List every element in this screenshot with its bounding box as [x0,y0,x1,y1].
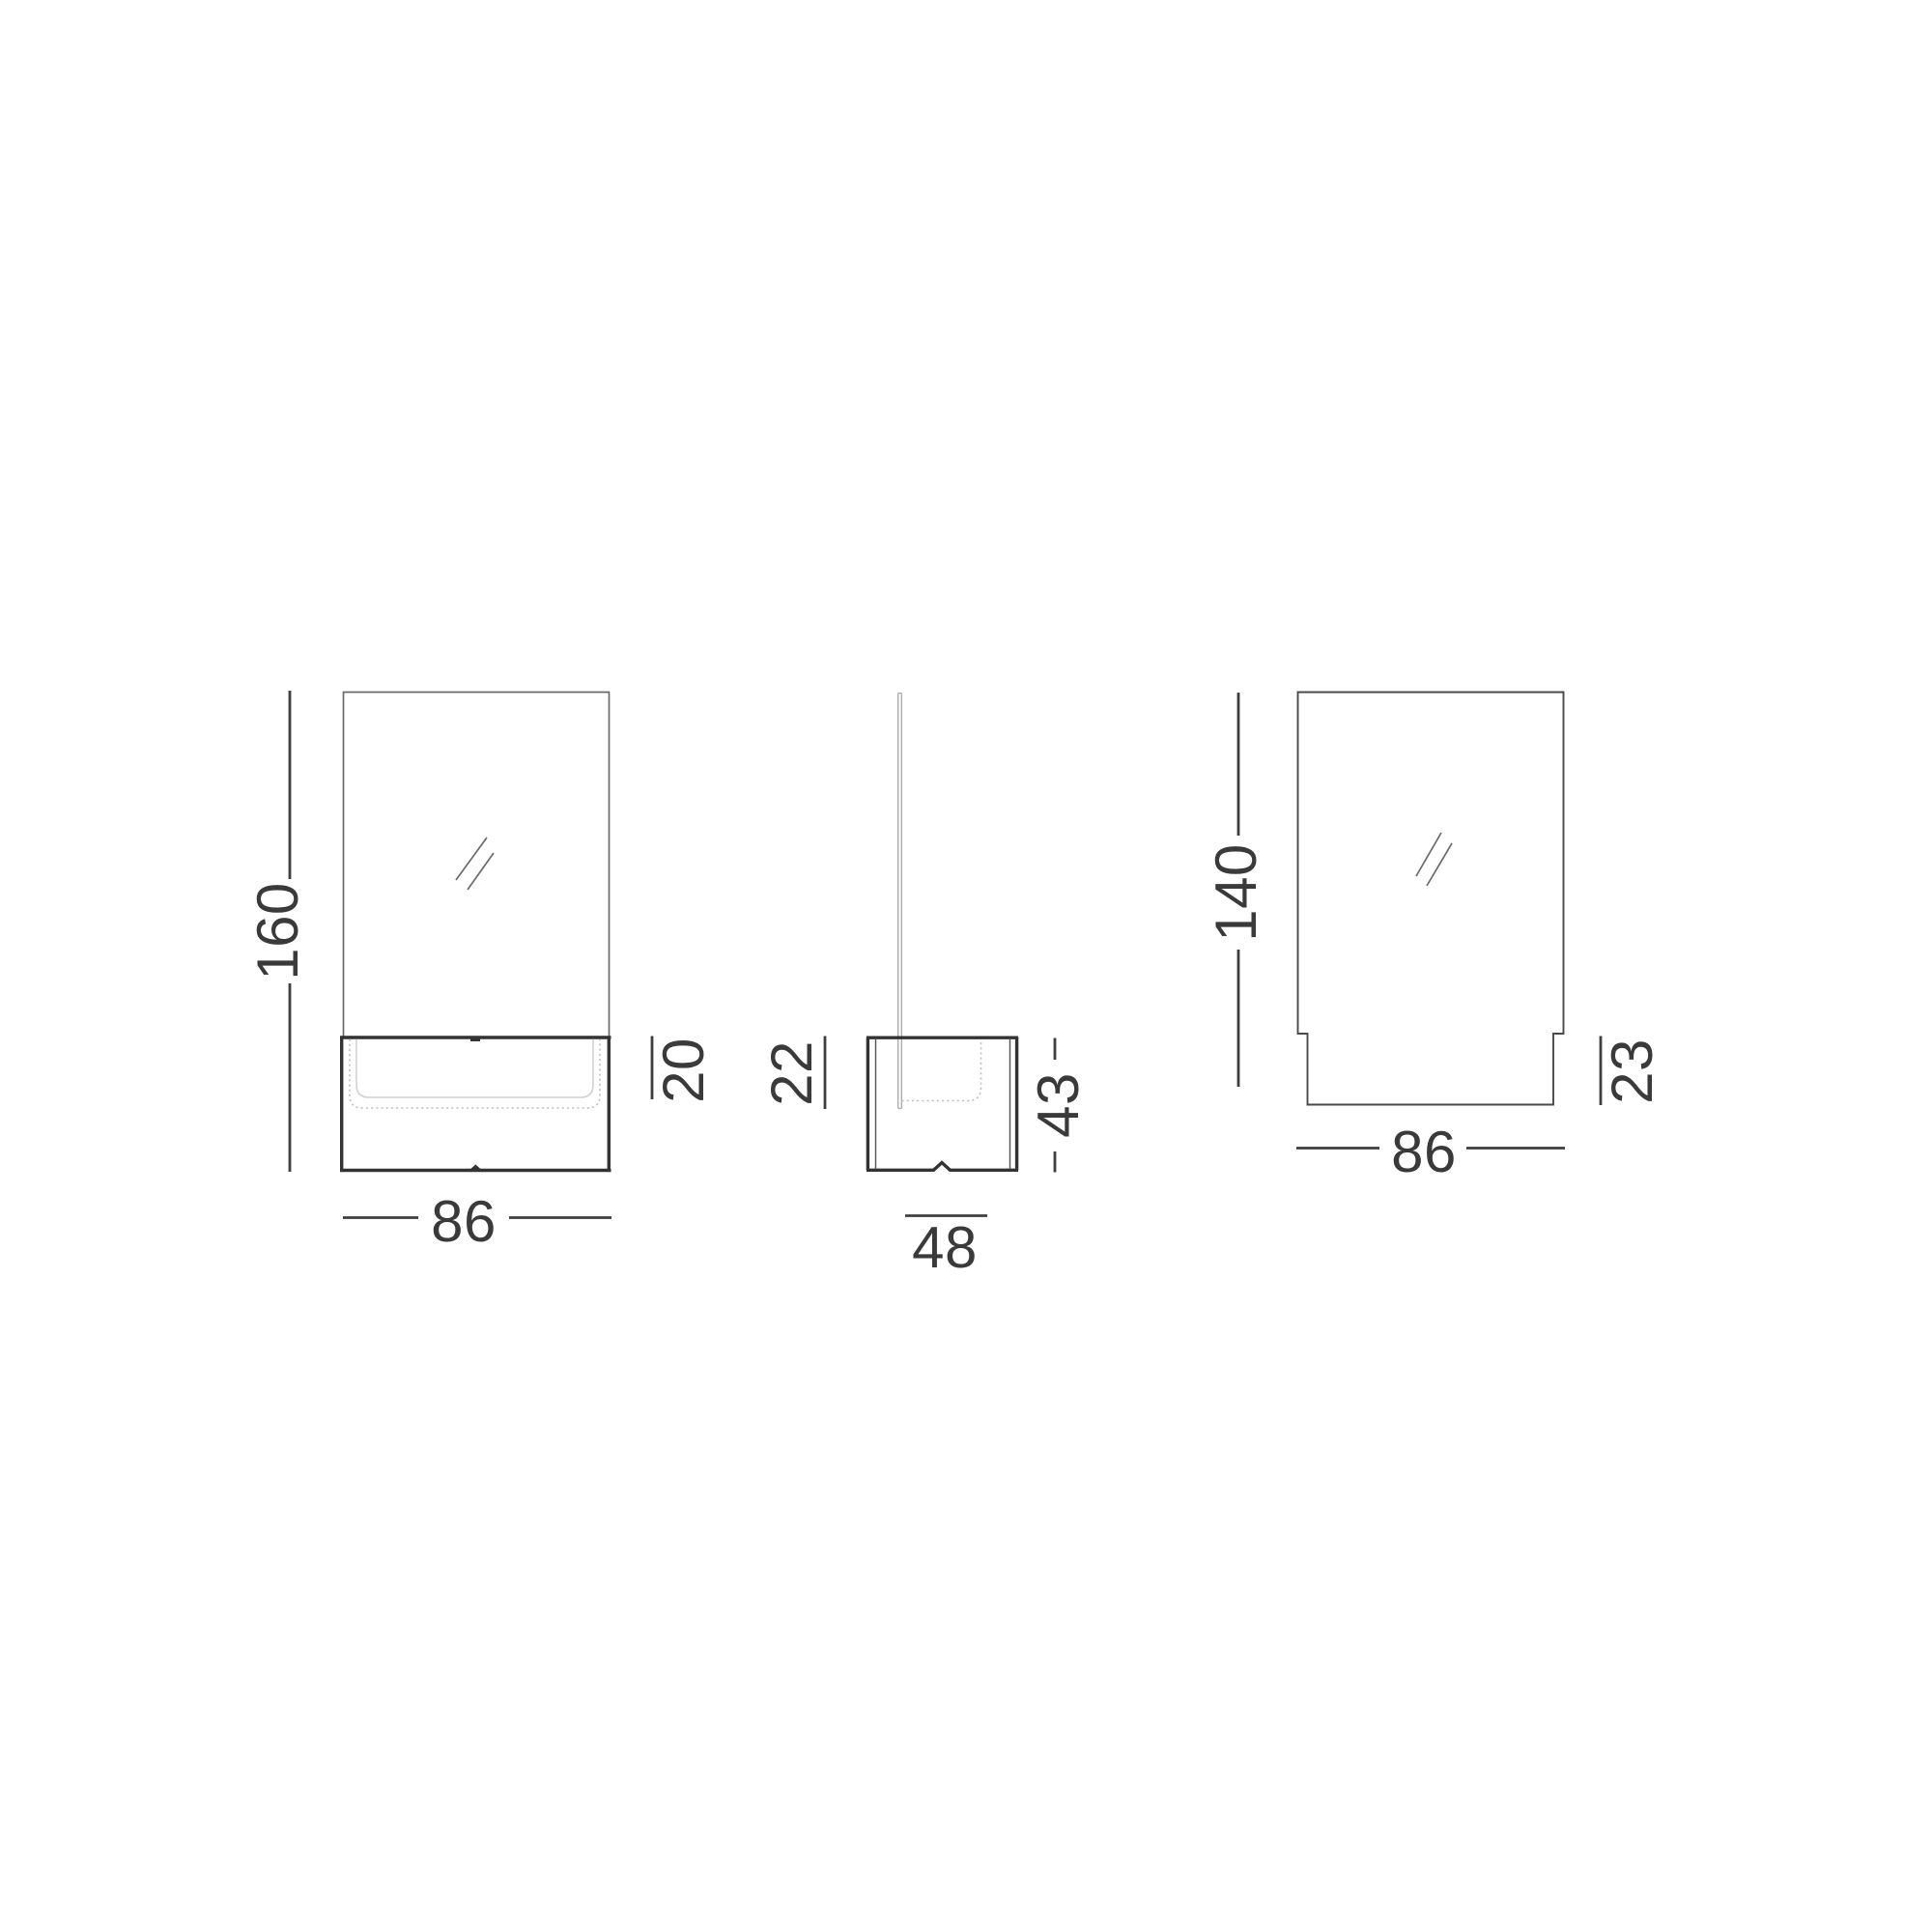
side-view [825,694,1055,1216]
mirror-panel-view [1238,693,1601,1149]
front-width-dimension-label: 86 [431,1193,497,1251]
front-opening-dimension-label: 20 [655,1037,713,1103]
front-base-cabinet-outline [340,1037,611,1171]
side-mirror-edge-line [898,694,902,1109]
side-depth-dimension-label: 48 [912,1219,978,1277]
side-hidden-shelf-line [902,1040,981,1101]
mirror-height-dimension-label: 140 [1207,843,1265,942]
front-view [290,691,652,1218]
front-top-seam-nub [470,1037,480,1041]
side-height-dimension-label: 43 [1030,1072,1088,1138]
side-depth-top-dimension-label: 22 [763,1040,821,1106]
technical-drawing-sheet: 160 20 86 22 43 48 140 23 86 [0,0,1932,1932]
side-base-cabinet-outline [867,1037,1018,1170]
mirror-panel-outline [1298,693,1564,1105]
side-panel-thickness-lines [876,1038,1010,1169]
front-shelf-inset-line [356,1039,593,1097]
mirror-width-dimension-label: 86 [1391,1123,1457,1181]
mirror-glass-reflection-icon [1416,833,1452,886]
front-glass-reflection-icon [456,838,494,890]
front-height-dimension-label: 160 [249,882,307,980]
mirror-overlap-dimension-label: 23 [1604,1038,1662,1104]
front-bottom-seam-nub [469,1165,483,1171]
front-mirror-outline [344,693,610,1037]
